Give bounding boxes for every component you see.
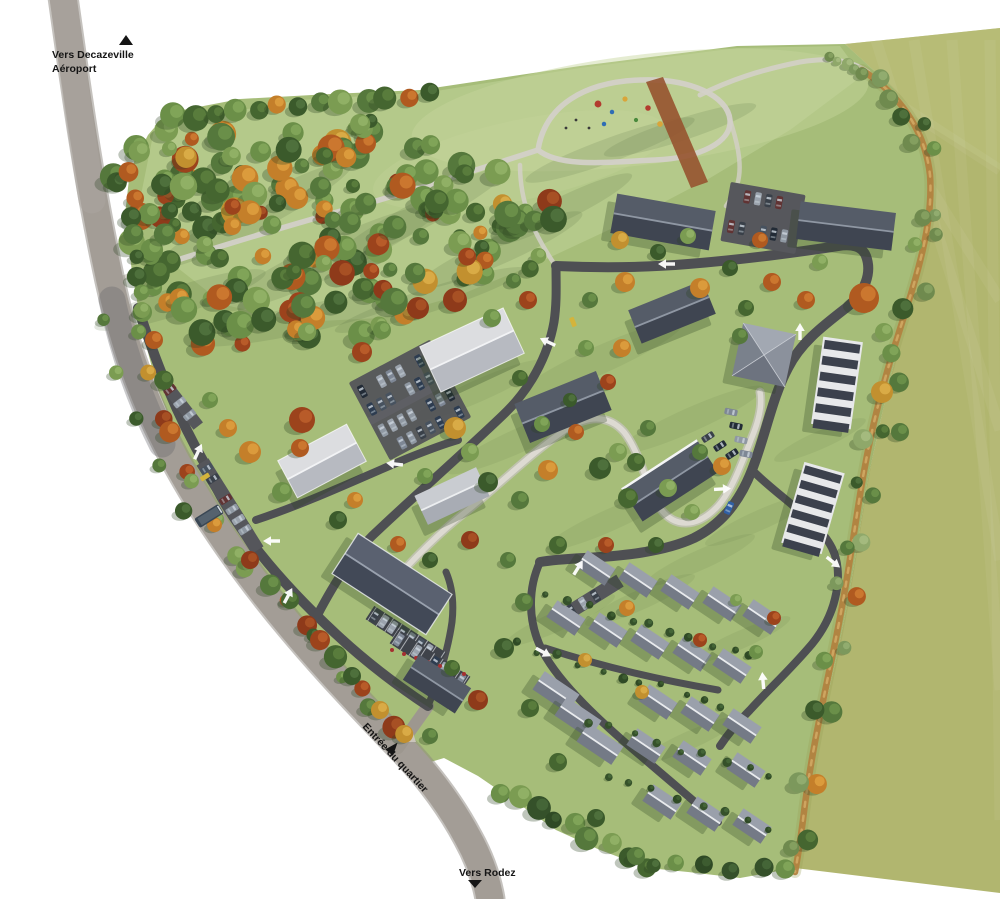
triangle-up-icon: [119, 35, 133, 45]
label-vers-decazeville: Vers Decazeville: [52, 49, 134, 61]
playground-item: [595, 101, 602, 108]
playground-item: [610, 110, 614, 114]
label-vers-rodez: Vers Rodez: [459, 867, 516, 879]
playground-item: [634, 118, 638, 122]
playground-item: [657, 121, 663, 127]
playground-item: [602, 122, 606, 126]
playground-item: [622, 96, 627, 101]
site-plan-page: Vers Decazeville Aéroport Vers Rodez Ent…: [0, 0, 1000, 899]
playground-item: [645, 105, 651, 111]
aerial-site-plan: Vers Decazeville Aéroport Vers Rodez Ent…: [0, 0, 1000, 899]
label-aeroport: Aéroport: [52, 63, 97, 75]
